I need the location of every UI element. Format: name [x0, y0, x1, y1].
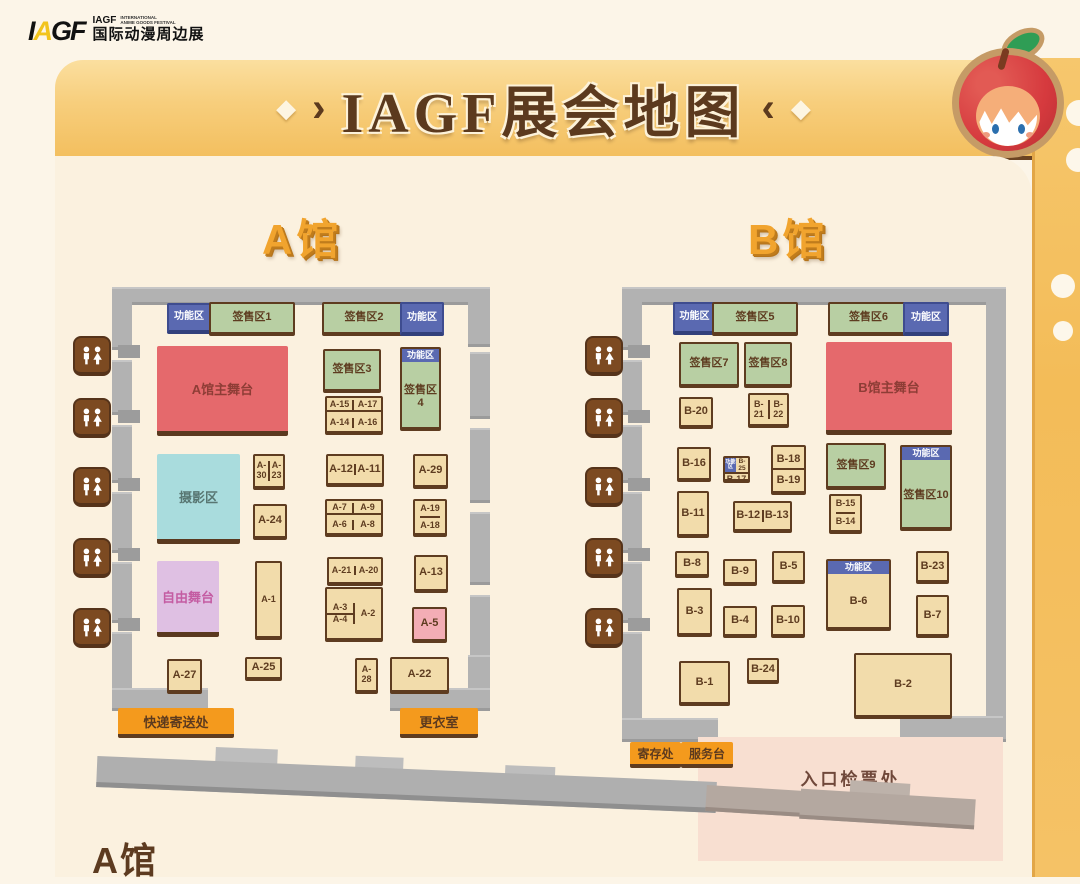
chevron-left-icon: ‹ — [762, 96, 775, 120]
zone-signing-2: 签售区2 — [322, 302, 406, 336]
wall — [112, 562, 132, 623]
booth-pair-a12-a11: A-12 A-11 — [326, 454, 384, 487]
service-desk: 服务台 — [681, 742, 733, 768]
logo-letter: A — [34, 16, 52, 46]
zone-function-area: 功能区 — [400, 302, 444, 336]
booth-group-a3-a4-a2: A-3 A-4 A-2 — [325, 587, 383, 642]
changing-room: 更衣室 — [400, 708, 478, 738]
scallop-dot — [1051, 274, 1075, 298]
booth-a20: A-20 — [356, 566, 381, 576]
wall — [622, 425, 642, 483]
wall — [622, 492, 642, 553]
booth-a8: A-8 — [354, 520, 381, 530]
photo-area: 摄影区 — [157, 454, 240, 544]
zone-signing-5: 签售区5 — [712, 302, 798, 336]
wall — [118, 345, 140, 358]
booth-combo-b25-b17: 功能区 B-25 B-17 — [723, 456, 750, 483]
wall — [628, 410, 650, 423]
chevron-right-icon: › — [312, 96, 325, 120]
booth-b25: B-25 — [736, 458, 748, 472]
booth-pair-a30-a23: A-30 A-23 — [253, 454, 285, 490]
wall — [118, 410, 140, 423]
zone-signing-6: 签售区6 — [828, 302, 909, 336]
booth-a15: A-15 — [327, 400, 354, 412]
booth-pair-b12-b13: B-12 B-13 — [733, 501, 792, 533]
restroom-icon — [73, 467, 111, 507]
page-title: IAGF展会地图 — [342, 68, 746, 149]
booth-a1: A-1 — [255, 561, 282, 640]
booth-a14: A-14 — [327, 418, 354, 428]
wall — [112, 492, 132, 553]
booth-a25: A-25 — [245, 657, 282, 681]
right-border-strip — [1032, 58, 1080, 877]
booth-pair-a21-a20: A-21 A-20 — [327, 557, 383, 586]
zone-signing-3: 签售区3 — [323, 349, 381, 393]
booth-b7: B-7 — [916, 595, 949, 638]
wall — [628, 618, 650, 631]
booth-b5: B-5 — [772, 551, 805, 584]
zone-function-mini: 功能区 — [725, 458, 736, 472]
booth-b1: B-1 — [679, 661, 730, 706]
restroom-icon — [585, 538, 623, 578]
exhibition-map-page: IAGF IAGF INTERNATIONALANIME GOODS FESTI… — [0, 0, 1080, 877]
wall — [468, 287, 490, 347]
scallop-dot — [1053, 321, 1073, 341]
booth-a4: A-4 — [327, 615, 353, 625]
booth-a13: A-13 — [414, 555, 448, 593]
zone-function-header: 功能区 — [828, 561, 889, 574]
wall — [622, 562, 642, 623]
restroom-icon — [585, 608, 623, 648]
diamond-icon: ◆ — [791, 93, 811, 124]
wall — [622, 360, 642, 415]
zone-function-area: 功能区 — [167, 303, 211, 334]
booth-a27: A-27 — [167, 659, 202, 694]
booth-b17: B-17 — [725, 474, 748, 484]
booth-b14: B-14 — [836, 514, 856, 530]
booth-b13: B-13 — [764, 510, 791, 522]
mascot-blush — [1026, 132, 1034, 138]
diamond-icon: ◆ — [276, 93, 296, 124]
booth-a9: A-9 — [354, 503, 381, 515]
zone-function-area: 功能区 — [673, 302, 716, 335]
zone-function-header: 功能区 — [402, 349, 439, 362]
booth-a6: A-6 — [327, 520, 354, 530]
free-stage: 自由舞台 — [157, 561, 219, 637]
booth-b9: B-9 — [723, 559, 757, 586]
logo-name-cn: 国际动漫周边展 — [93, 27, 205, 43]
restroom-icon — [73, 608, 111, 648]
booth-a24: A-24 — [253, 504, 287, 540]
booth-a22: A-22 — [390, 657, 449, 694]
mascot-blush — [982, 132, 990, 138]
wall — [470, 595, 490, 660]
wall — [628, 345, 650, 358]
restroom-icon — [73, 398, 111, 438]
booth-a23: A-23 — [270, 461, 283, 480]
booth-b24: B-24 — [747, 658, 779, 684]
wall — [112, 425, 132, 483]
booth-b4: B-4 — [723, 606, 757, 638]
legend-hall-a-label: A馆 — [92, 832, 158, 884]
booth-b19: B-19 — [771, 468, 806, 495]
booth-b16: B-16 — [677, 447, 711, 482]
booth-b10: B-10 — [771, 605, 805, 638]
wall — [470, 428, 490, 503]
booth-b3: B-3 — [677, 588, 712, 637]
booth-a3: A-3 — [327, 603, 353, 615]
booth-a12: A-12 — [328, 464, 356, 476]
wall — [118, 478, 140, 491]
hall-b-title: B馆 — [748, 206, 828, 267]
booth-b6: B-6 — [828, 574, 889, 627]
mascot-eye — [992, 124, 999, 134]
booth-b2: B-2 — [854, 653, 952, 719]
booth-b20: B-20 — [679, 397, 713, 429]
wall — [118, 548, 140, 561]
booth-b8: B-8 — [675, 551, 709, 578]
booth-a19: A-19 — [420, 501, 440, 518]
booth-b6-function: 功能区 B-6 — [826, 559, 891, 631]
restroom-icon — [73, 538, 111, 578]
restroom-icon — [585, 336, 623, 376]
logo-letter: G — [51, 16, 70, 46]
booth-pair-b21-b22: B-21 B-22 — [748, 393, 789, 428]
zone-signing-8: 签售区8 — [744, 342, 792, 388]
booth-b15: B-15 — [836, 496, 856, 514]
zone-signing-4-label: 签售区4 — [402, 362, 439, 427]
wall — [112, 287, 132, 350]
hall-a-title: A馆 — [262, 206, 342, 267]
storage-desk: 寄存处 — [630, 742, 681, 768]
booth-a16: A-16 — [354, 418, 381, 428]
booth-b12: B-12 — [735, 510, 764, 522]
restroom-icon — [73, 336, 111, 376]
hall-a-main-stage: A馆主舞台 — [157, 346, 288, 436]
wall — [628, 478, 650, 491]
zone-signing-10: 功能区 签售区10 — [900, 445, 952, 531]
mascot-eye — [1018, 124, 1025, 134]
zone-signing-1: 签售区1 — [209, 302, 295, 336]
logo-letter: F — [70, 16, 85, 46]
booth-b22: B-22 — [770, 400, 788, 419]
wall — [118, 618, 140, 631]
wall — [628, 548, 650, 561]
zone-function-header: 功能区 — [902, 447, 950, 460]
booth-a2: A-2 — [355, 609, 381, 619]
zone-signing-10-label: 签售区10 — [902, 460, 950, 527]
express-shipping-desk: 快递寄送处 — [118, 708, 234, 738]
booth-a5: A-5 — [412, 607, 447, 643]
wall — [470, 512, 490, 585]
wall — [986, 287, 1006, 742]
wall — [622, 287, 642, 350]
zone-signing-7: 签售区7 — [679, 342, 739, 388]
title-banner: ◆ › IAGF展会地图 ‹ ◆ — [55, 60, 1032, 160]
wall — [470, 352, 490, 419]
wall — [112, 360, 132, 415]
zone-function-area: 功能区 — [903, 302, 949, 336]
booth-a11: A-11 — [356, 464, 382, 476]
booth-a30: A-30 — [255, 461, 270, 480]
logo-text: IAGF INTERNATIONALANIME GOODS FESTIVAL 国… — [93, 16, 205, 42]
booth-a29: A-29 — [413, 454, 448, 489]
iagf-logo: IAGF IAGF INTERNATIONALANIME GOODS FESTI… — [28, 16, 205, 47]
booth-a21: A-21 — [329, 566, 356, 576]
logo-name-en: IAGF — [93, 16, 117, 27]
logo-tagline: INTERNATIONALANIME GOODS FESTIVAL — [120, 16, 175, 26]
zone-signing-4: 功能区 签售区4 — [400, 347, 441, 431]
booth-a17: A-17 — [354, 400, 381, 412]
booth-b11: B-11 — [677, 491, 709, 538]
restroom-icon — [585, 467, 623, 507]
apple-mascot — [942, 34, 1072, 164]
booth-a28: A-28 — [355, 658, 378, 694]
booth-a18: A-18 — [420, 518, 440, 533]
iagf-logo-mark: IAGF — [28, 16, 85, 47]
booth-stack-b15-b14: B-15 B-14 — [829, 494, 862, 534]
booth-a7: A-7 — [327, 503, 354, 515]
booth-grid-a15-a17-a14-a16: A-15 A-17 A-14 A-16 — [325, 396, 383, 435]
mascot-face — [976, 86, 1040, 146]
hall-b-main-stage: B馆主舞台 — [826, 342, 952, 435]
booth-b21: B-21 — [750, 400, 770, 419]
booth-b23: B-23 — [916, 551, 949, 584]
booth-grid-a7-a9-a6-a8: A-7 A-9 A-6 A-8 — [325, 499, 383, 537]
booth-stack-a19-a18: A-19 A-18 — [413, 499, 447, 537]
restroom-icon — [585, 398, 623, 438]
zone-signing-9: 签售区9 — [826, 443, 886, 490]
